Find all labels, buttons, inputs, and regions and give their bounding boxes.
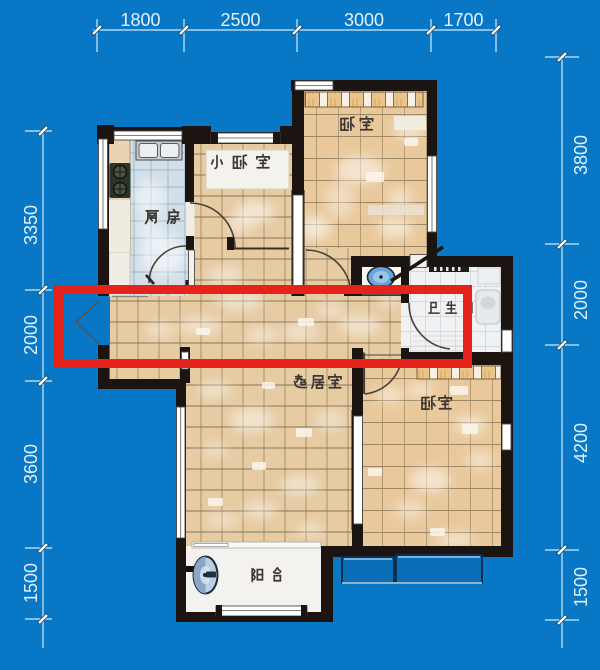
svg-text:1500: 1500 bbox=[21, 563, 41, 603]
svg-text:3600: 3600 bbox=[21, 444, 41, 484]
svg-text:3350: 3350 bbox=[21, 205, 41, 245]
svg-text:3800: 3800 bbox=[571, 135, 591, 175]
svg-text:1700: 1700 bbox=[443, 10, 483, 30]
svg-text:4200: 4200 bbox=[571, 423, 591, 463]
svg-text:1800: 1800 bbox=[120, 10, 160, 30]
svg-text:1500: 1500 bbox=[571, 567, 591, 607]
svg-text:3000: 3000 bbox=[344, 10, 384, 30]
svg-text:2000: 2000 bbox=[21, 315, 41, 355]
svg-text:2000: 2000 bbox=[571, 280, 591, 320]
svg-text:2500: 2500 bbox=[220, 10, 260, 30]
